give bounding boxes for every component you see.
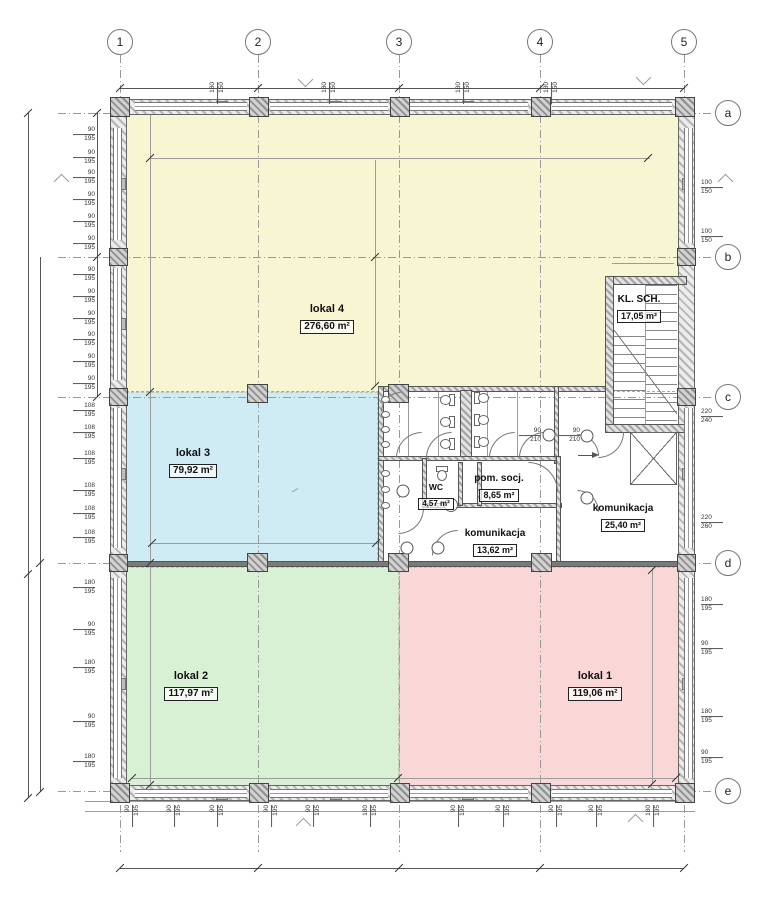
window-dim-b: 195 xyxy=(219,805,227,827)
window-dim-pair: 108 195 xyxy=(73,424,95,442)
window-dim-a: 90 xyxy=(73,235,95,244)
window-dim-b: 195 xyxy=(505,805,513,827)
window-dim-b: 195 xyxy=(73,723,95,731)
window xyxy=(113,408,122,548)
window-dim-pair: 108 195 xyxy=(73,402,95,420)
window-dim-pair: 90 195 xyxy=(73,213,95,231)
window xyxy=(410,789,528,798)
window-dim-b: 195 xyxy=(73,298,95,306)
sink-icon xyxy=(381,470,390,477)
window-dim-b: 195 xyxy=(176,805,184,827)
window-dim-pair: 100 150 xyxy=(701,228,723,246)
dim-line xyxy=(40,257,41,792)
window xyxy=(684,578,693,778)
window-dim-pair: 90 210 xyxy=(558,427,580,445)
window-dim-a: 180 xyxy=(209,82,218,104)
window-dim-b: 195 xyxy=(73,179,95,187)
pier xyxy=(247,553,268,572)
grid-row-bubble: b xyxy=(715,244,741,270)
window-dim-a: 90 xyxy=(73,213,95,222)
grid-line-vertical xyxy=(258,55,259,852)
window-dim-pair: 108 195 xyxy=(73,505,95,523)
toilet-icon xyxy=(441,394,455,404)
window-dim-pair: 220 260 xyxy=(701,514,723,532)
dim-line xyxy=(152,543,378,544)
window-dim-a: 100 xyxy=(701,228,723,237)
window-dim-b: 195 xyxy=(73,492,95,500)
window-dim-b: 195 xyxy=(73,223,95,231)
window-dim-a: 180 xyxy=(543,82,552,104)
dimension-text xyxy=(292,488,301,495)
window-dim-b: 195 xyxy=(701,718,723,726)
pier xyxy=(109,248,128,266)
window-dim-pair: 90 195 xyxy=(588,805,606,827)
dim-line xyxy=(150,158,650,159)
window-dim-b: 195 xyxy=(73,201,95,209)
room-area: 4,57 m² xyxy=(418,498,454,510)
stall-partition xyxy=(517,392,518,456)
window xyxy=(113,128,122,240)
window-dim-b: 195 xyxy=(73,460,95,468)
window-dim-b: 195 xyxy=(655,805,663,827)
window-dim-a: 90 xyxy=(701,640,723,649)
window-dim-a: 108 xyxy=(73,450,95,459)
window-dim-a: 100 xyxy=(701,179,723,188)
window-dim-b: 150 xyxy=(701,189,723,197)
pier xyxy=(388,553,409,572)
window-dim-pair: 90 195 xyxy=(73,353,95,371)
room-area: 117,97 m² xyxy=(164,687,217,702)
window-dim-a: 180 xyxy=(73,659,95,668)
window-dim-b: 195 xyxy=(73,434,95,442)
window-dim-pair: 90 195 xyxy=(305,805,323,827)
window-dim-b: 195 xyxy=(315,805,323,827)
window-dim-pair: 90 195 xyxy=(73,288,95,306)
room-label: lokal 4 276,60 m² xyxy=(287,303,367,334)
sink-icon xyxy=(381,486,390,493)
window-dim-a: 90 xyxy=(166,805,175,827)
window-dim-a: 90 xyxy=(73,331,95,340)
window xyxy=(135,789,247,798)
window-dim-pair: 90 195 xyxy=(73,266,95,284)
window-dim-b: 195 xyxy=(73,320,95,328)
window-dim-a: 220 xyxy=(701,514,723,523)
window-dim-b: 195 xyxy=(598,805,606,827)
window-dim-pair: 180 150 xyxy=(321,82,339,104)
window-dim-pair: 90 195 xyxy=(495,805,513,827)
window-dim-a: 90 xyxy=(263,805,272,827)
window-dim-b: 195 xyxy=(701,606,723,614)
room-area: 79,92 m² xyxy=(169,464,217,479)
window-dim-a: 90 xyxy=(124,805,133,827)
room-label: WC 4,57 m² xyxy=(414,483,458,511)
sink-icon xyxy=(381,426,390,433)
window-dim-pair: 90 195 xyxy=(124,805,142,827)
window-dim-a: 90 xyxy=(495,805,504,827)
room-name: lokal 4 xyxy=(287,303,367,316)
window-dim-b: 195 xyxy=(73,245,95,253)
window xyxy=(552,789,672,798)
window-dim-pair: 90 195 xyxy=(450,805,468,827)
room-name: komunikacja xyxy=(580,503,666,515)
window-dim-pair: 90 195 xyxy=(73,149,95,167)
window-dim-a: 108 xyxy=(73,424,95,433)
grid-line-horizontal xyxy=(58,257,713,258)
window-dim-b: 150 xyxy=(219,82,227,104)
window-dim-b: 195 xyxy=(73,539,95,547)
window-dim-a: 180 xyxy=(701,708,723,717)
door-tag xyxy=(543,429,556,442)
pier xyxy=(247,384,268,403)
window xyxy=(113,268,122,380)
sink-icon xyxy=(381,411,390,418)
room-label: KL. SCH. 17,05 m² xyxy=(606,294,672,324)
window xyxy=(135,102,247,111)
pier xyxy=(110,783,130,803)
window-dim-b: 240 xyxy=(701,418,723,426)
toilet-icon xyxy=(474,416,488,426)
toilet-icon xyxy=(474,438,488,448)
pier xyxy=(390,97,410,117)
room-name: pom. socj. xyxy=(460,473,538,485)
window-dim-a: 90 xyxy=(73,713,95,722)
core-wall xyxy=(460,390,472,460)
window-dim-a: 90 xyxy=(73,621,95,630)
window-dim-a: 90 xyxy=(73,169,95,178)
shaft xyxy=(630,432,677,485)
window-dim-pair: 180 150 xyxy=(455,82,473,104)
dim-line xyxy=(612,263,674,264)
grid-row-bubble: c xyxy=(715,384,741,410)
room-label: lokal 1 119,06 m² xyxy=(552,670,638,701)
window-dim-a: 90 xyxy=(209,805,218,827)
window-dim-pair: 90 195 xyxy=(166,805,184,827)
window-dim-pair: 180 150 xyxy=(209,82,227,104)
window-dim-a: 90 xyxy=(73,288,95,297)
window-dim-b: 195 xyxy=(73,412,95,420)
window-dim-pair: 90 195 xyxy=(73,713,95,731)
pier xyxy=(677,248,696,266)
arrow-head xyxy=(592,452,599,458)
window-dim-pair: 180 195 xyxy=(645,805,663,827)
room-area: 17,05 m² xyxy=(617,310,661,323)
window-dim-a: 180 xyxy=(645,805,654,827)
zone-lokal3 xyxy=(126,392,378,565)
window-dim-a: 180 xyxy=(321,82,330,104)
window-dim-a: 180 xyxy=(73,579,95,588)
window-dim-pair: 180 150 xyxy=(543,82,561,104)
room-area: 119,06 m² xyxy=(568,687,621,702)
dim-line xyxy=(28,113,29,798)
window-dim-pair: 108 195 xyxy=(73,450,95,468)
zone-lokal4 xyxy=(126,114,680,392)
window xyxy=(684,408,693,548)
window-dim-pair: 90 195 xyxy=(73,621,95,639)
window-dim-b: 195 xyxy=(273,805,281,827)
window-dim-a: 90 xyxy=(450,805,459,827)
core-wall xyxy=(378,386,608,392)
dim-line xyxy=(652,568,653,784)
window-dim-a: 90 xyxy=(73,353,95,362)
sink-icon xyxy=(381,441,390,448)
window-dim-pair: 90 195 xyxy=(73,126,95,144)
window-dim-pair: 220 240 xyxy=(701,408,723,426)
window-dim-pair: 90 195 xyxy=(548,805,566,827)
window-dim-b: 150 xyxy=(331,82,339,104)
pier xyxy=(110,97,130,117)
room-area: 13,62 m² xyxy=(473,544,517,557)
window-dim-pair: 180 195 xyxy=(73,753,95,771)
window-dim-a: 90 xyxy=(73,149,95,158)
window xyxy=(113,578,122,778)
window-dim-a: 90 xyxy=(519,427,541,436)
window-dim-a: 180 xyxy=(455,82,464,104)
toilet-icon xyxy=(474,394,488,404)
window-dim-b: 260 xyxy=(701,524,723,532)
window-dim-pair: 90 195 xyxy=(209,805,227,827)
grid-column-bubble: 3 xyxy=(386,29,412,55)
window-dim-b: 195 xyxy=(73,341,95,349)
window-dim-a: 90 xyxy=(73,266,95,275)
window-dim-a: 90 xyxy=(305,805,314,827)
window xyxy=(684,128,693,243)
window-dim-b: 195 xyxy=(372,805,380,827)
window-dim-pair: 90 195 xyxy=(73,235,95,253)
stair-wall xyxy=(605,276,687,285)
window-dim-b: 195 xyxy=(73,763,95,771)
door-tag xyxy=(397,485,410,498)
window-dim-b: 195 xyxy=(73,631,95,639)
pier xyxy=(249,783,269,803)
grid-row-bubble: d xyxy=(715,550,741,576)
grid-row-bubble: e xyxy=(715,778,741,804)
window-dim-pair: 90 195 xyxy=(73,191,95,209)
window-dim-a: 220 xyxy=(701,408,723,417)
window-dim-pair: 108 195 xyxy=(73,482,95,500)
section-chevron xyxy=(636,70,652,86)
dim-line xyxy=(120,88,684,89)
window-dim-pair: 100 150 xyxy=(701,179,723,197)
room-name: lokal 3 xyxy=(153,447,233,460)
pier xyxy=(109,388,128,406)
window-dim-b: 195 xyxy=(134,805,142,827)
door-tag xyxy=(581,430,594,443)
dim-line xyxy=(120,868,684,869)
window-dim-pair: 180 195 xyxy=(701,596,723,614)
grid-column-bubble: 4 xyxy=(527,29,553,55)
toilet-icon xyxy=(441,416,455,426)
pier xyxy=(677,554,696,572)
window-dim-b: 195 xyxy=(460,805,468,827)
window-dim-b: 210 xyxy=(519,437,541,445)
window-dim-a: 108 xyxy=(73,402,95,411)
core-wall xyxy=(556,456,561,563)
window-dim-a: 180 xyxy=(73,753,95,762)
window-dim-pair: 180 195 xyxy=(73,579,95,597)
dim-line xyxy=(132,778,398,779)
window-dim-b: 195 xyxy=(73,136,95,144)
window-dim-pair: 108 195 xyxy=(73,529,95,547)
window-dim-b: 195 xyxy=(701,650,723,658)
section-chevron xyxy=(628,814,644,830)
window-dim-b: 150 xyxy=(701,238,723,246)
pier xyxy=(109,554,128,572)
window-dim-a: 108 xyxy=(73,529,95,538)
window-dim-a: 90 xyxy=(548,805,557,827)
room-name: komunikacja xyxy=(452,528,538,540)
window-dim-b: 150 xyxy=(465,82,473,104)
room-name: lokal 1 xyxy=(552,670,638,683)
window-dim-b: 195 xyxy=(73,276,95,284)
pier xyxy=(531,783,551,803)
window-dim-pair: 180 195 xyxy=(73,659,95,677)
pier xyxy=(677,388,696,406)
door-tag xyxy=(401,542,414,555)
door-tag xyxy=(432,542,445,555)
sink-icon xyxy=(381,396,390,403)
floor-plan: 1 2 3 4 5 a b c d e 180 150 180 150 180 … xyxy=(0,0,768,913)
room-label: komunikacja 13,62 m² xyxy=(452,528,538,558)
window-dim-pair: 90 195 xyxy=(73,169,95,187)
room-name: lokal 2 xyxy=(148,670,234,683)
window-dim-a: 90 xyxy=(73,126,95,135)
window-dim-pair: 180 195 xyxy=(701,708,723,726)
grid-column-bubble: 5 xyxy=(671,29,697,55)
window-dim-pair: 90 210 xyxy=(519,427,541,445)
stair-diagonal xyxy=(614,330,677,414)
room-label: komunikacja 25,40 m² xyxy=(580,503,666,533)
window-dim-a: 90 xyxy=(73,375,95,384)
window-dim-a: 108 xyxy=(73,505,95,514)
section-chevron xyxy=(298,72,314,88)
core-wall xyxy=(554,386,559,464)
pier xyxy=(675,97,695,117)
window-dim-a: 90 xyxy=(701,749,723,758)
room-area: 8,65 m² xyxy=(479,489,518,502)
window xyxy=(552,102,672,111)
window-dim-a: 90 xyxy=(73,310,95,319)
window-dim-b: 195 xyxy=(73,159,95,167)
room-name: WC xyxy=(414,483,458,493)
pier xyxy=(675,783,695,803)
room-name: KL. SCH. xyxy=(606,294,672,306)
room-area: 25,40 m² xyxy=(601,519,645,532)
window-dim-pair: 180 195 xyxy=(362,805,380,827)
window-dim-a: 90 xyxy=(558,427,580,436)
room-label: lokal 2 117,97 m² xyxy=(148,670,234,701)
room-label: lokal 3 79,92 m² xyxy=(153,447,233,478)
pier xyxy=(390,783,410,803)
window-dim-a: 108 xyxy=(73,482,95,491)
window-dim-b: 195 xyxy=(73,589,95,597)
grid-column-bubble: 2 xyxy=(245,29,271,55)
window-dim-a: 180 xyxy=(362,805,371,827)
window-dim-b: 195 xyxy=(558,805,566,827)
sink-icon xyxy=(381,502,390,509)
grid-row-bubble: a xyxy=(715,100,741,126)
pier xyxy=(249,97,269,117)
window-dim-a: 90 xyxy=(588,805,597,827)
grid-column-bubble: 1 xyxy=(107,29,133,55)
dim-line xyxy=(400,778,676,779)
window-dim-a: 180 xyxy=(701,596,723,605)
room-label: pom. socj. 8,65 m² xyxy=(460,473,538,503)
window-dim-pair: 90 195 xyxy=(73,331,95,349)
window-dim-pair: 90 195 xyxy=(701,749,723,767)
toilet-icon xyxy=(441,438,455,448)
room-area: 276,60 m² xyxy=(300,320,354,335)
window-dim-pair: 90 195 xyxy=(263,805,281,827)
window-dim-pair: 90 195 xyxy=(73,310,95,328)
section-chevron xyxy=(54,174,70,190)
window xyxy=(270,789,388,798)
window-dim-b: 195 xyxy=(701,759,723,767)
window-dim-b: 195 xyxy=(73,385,95,393)
window-dim-a: 90 xyxy=(73,191,95,200)
dim-line xyxy=(375,160,376,386)
toilet-icon xyxy=(436,466,446,480)
window-dim-b: 195 xyxy=(73,669,95,677)
window-dim-pair: 90 195 xyxy=(73,375,95,393)
window-dim-b: 210 xyxy=(558,437,580,445)
window-dim-b: 150 xyxy=(553,82,561,104)
window-dim-pair: 90 195 xyxy=(701,640,723,658)
window-dim-b: 195 xyxy=(73,515,95,523)
window-dim-b: 195 xyxy=(73,363,95,371)
